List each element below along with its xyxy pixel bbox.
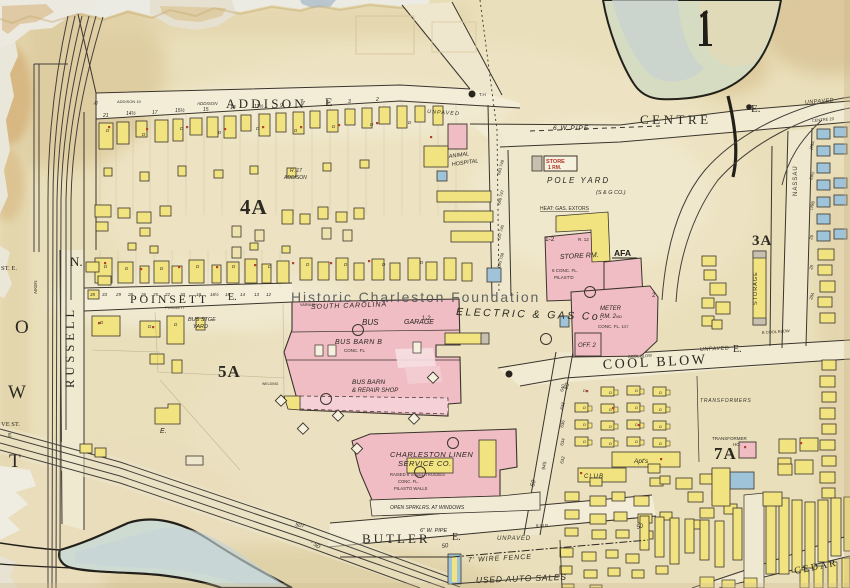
svg-text:1-2: 1-2: [545, 236, 555, 243]
svg-text:1-2: 1-2: [422, 316, 431, 322]
svg-text:T.H: T.H: [479, 92, 486, 97]
svg-text:ADDISON 19: ADDISON 19: [117, 99, 142, 104]
svg-text:CHARLESTON LINEN: CHARLESTON LINEN: [390, 450, 473, 459]
svg-text:2: 2: [375, 97, 379, 103]
svg-text:Historic Charleston Foundation: Historic Charleston Foundation: [291, 289, 540, 305]
svg-text:CONC. FL. 1ST: CONC. FL. 1ST: [598, 324, 629, 329]
svg-text:POLE YARD: POLE YARD: [547, 176, 610, 185]
svg-text:3A: 3A: [752, 233, 772, 249]
svg-text:3: 3: [348, 99, 351, 105]
svg-text:D: D: [635, 405, 638, 410]
svg-text:13: 13: [254, 292, 260, 297]
svg-text:(S & G CO.): (S & G CO.): [596, 190, 626, 196]
svg-text:BUS BARN: BUS BARN: [352, 379, 386, 386]
svg-text:R. 17: R. 17: [290, 168, 302, 174]
svg-text:6 W.P.: 6 W.P.: [536, 523, 549, 528]
svg-text:SERVICE CO.: SERVICE CO.: [398, 459, 452, 468]
svg-text:CENTRE: CENTRE: [640, 112, 712, 127]
svg-text:AIKEN: AIKEN: [33, 280, 38, 294]
svg-text:PILAST'D WALLS: PILAST'D WALLS: [394, 486, 428, 491]
svg-text:18: 18: [196, 292, 202, 297]
svg-text:E: E: [8, 433, 12, 439]
svg-text:28: 28: [127, 292, 134, 297]
svg-text:RUSSELL: RUSSELL: [63, 306, 77, 388]
svg-text:15½: 15½: [175, 107, 186, 114]
svg-text:D: D: [659, 424, 662, 429]
svg-text:ADDISON: ADDISON: [226, 96, 307, 111]
svg-text:E.: E.: [751, 103, 761, 115]
svg-text:D: D: [609, 407, 612, 412]
svg-text:D: D: [609, 441, 612, 446]
svg-text:1 RM.: 1 RM.: [548, 165, 562, 171]
svg-text:E.: E.: [160, 428, 167, 435]
svg-text:7: 7: [302, 101, 305, 107]
svg-text:16½: 16½: [210, 291, 219, 297]
svg-text:AFA: AFA: [614, 248, 631, 258]
svg-text:& REPAIR SHOP: & REPAIR SHOP: [352, 388, 398, 394]
svg-text:HEAT: GAS. EXTORS: HEAT: GAS. EXTORS: [540, 206, 590, 212]
svg-text:D: D: [659, 407, 662, 412]
svg-text:33: 33: [102, 292, 108, 297]
svg-text:D: D: [583, 405, 586, 410]
svg-text:14½: 14½: [126, 110, 137, 117]
svg-text:13: 13: [230, 105, 236, 111]
svg-text:9: 9: [280, 103, 283, 109]
svg-text:VE ST.: VE ST.: [1, 421, 20, 428]
svg-text:12: 12: [266, 292, 272, 297]
svg-text:25: 25: [152, 292, 159, 297]
svg-text:D: D: [635, 439, 638, 444]
svg-text:HO.: HO.: [733, 442, 741, 447]
svg-text:20: 20: [179, 292, 186, 297]
svg-text:BUS STGE: BUS STGE: [188, 317, 216, 323]
svg-text:D: D: [635, 388, 638, 393]
svg-text:CLUB: CLUB: [584, 474, 604, 480]
svg-text:W: W: [8, 382, 26, 403]
svg-text:UNPAVED: UNPAVED: [497, 536, 531, 542]
svg-text:E.: E.: [733, 344, 742, 355]
svg-text:N.: N.: [70, 254, 83, 269]
svg-text:17: 17: [152, 110, 158, 116]
svg-text:D: D: [609, 390, 612, 395]
svg-text:15: 15: [203, 107, 209, 113]
svg-text:POINSETT: POINSETT: [165, 305, 186, 310]
svg-text:TRANSFORMER: TRANSFORMER: [712, 436, 748, 441]
svg-text:D: D: [659, 390, 662, 395]
svg-text:4A: 4A: [240, 195, 268, 219]
svg-text:D: D: [583, 422, 586, 427]
svg-text:D: D: [659, 441, 662, 446]
svg-text:TRANSFORMERS: TRANSFORMERS: [700, 398, 752, 404]
svg-text:OPEN SPRKLRS. AT WINDOWS: OPEN SPRKLRS. AT WINDOWS: [390, 505, 465, 511]
svg-text:D: D: [583, 439, 586, 444]
svg-text:RAISED 8' STEEL TRUSSES: RAISED 8' STEEL TRUSSES: [390, 472, 445, 477]
svg-text:BUS BARN B: BUS BARN B: [335, 339, 382, 346]
svg-text:OFF. 2: OFF. 2: [578, 343, 597, 349]
svg-text:35: 35: [90, 292, 96, 297]
svg-text:O: O: [15, 317, 29, 338]
svg-text:WELDING: WELDING: [262, 382, 279, 386]
svg-text:D: D: [583, 388, 586, 393]
svg-text:6" W. PIPE: 6" W. PIPE: [420, 528, 447, 534]
svg-text:D: D: [635, 422, 638, 427]
svg-text:METER: METER: [600, 306, 622, 312]
svg-text:PILAST'D: PILAST'D: [554, 275, 574, 280]
svg-text:ADDISON: ADDISON: [196, 101, 218, 106]
svg-text:T: T: [9, 451, 21, 472]
svg-text:16: 16: [225, 292, 231, 297]
svg-text:STORAGE: STORAGE: [753, 271, 759, 305]
svg-text:BUS: BUS: [362, 318, 379, 327]
svg-text:NASSAU: NASSAU: [793, 165, 799, 196]
svg-text:R. 12: R. 12: [578, 237, 589, 242]
svg-text:5A: 5A: [218, 362, 241, 381]
svg-text:6 CONC. FL.: 6 CONC. FL.: [552, 268, 578, 273]
svg-text:22: 22: [164, 292, 171, 297]
svg-text:26: 26: [140, 292, 147, 297]
svg-text:11½: 11½: [254, 103, 264, 110]
svg-text:6 W PIPE: 6 W PIPE: [553, 125, 589, 132]
svg-text:Apt's: Apt's: [633, 458, 649, 465]
svg-text:5: 5: [326, 100, 329, 106]
svg-text:CONC. FL.: CONC. FL.: [398, 479, 419, 484]
svg-text:ST. E.: ST. E.: [1, 265, 17, 272]
svg-text:21: 21: [102, 113, 109, 119]
svg-text:CONC. FL: CONC. FL: [344, 348, 365, 353]
svg-text:D: D: [609, 424, 612, 429]
svg-text:ADDISON: ADDISON: [283, 175, 307, 181]
svg-text:YARD: YARD: [193, 324, 208, 330]
svg-text:29: 29: [115, 292, 122, 297]
svg-text:E.: E.: [452, 532, 461, 543]
svg-text:14: 14: [240, 292, 246, 297]
